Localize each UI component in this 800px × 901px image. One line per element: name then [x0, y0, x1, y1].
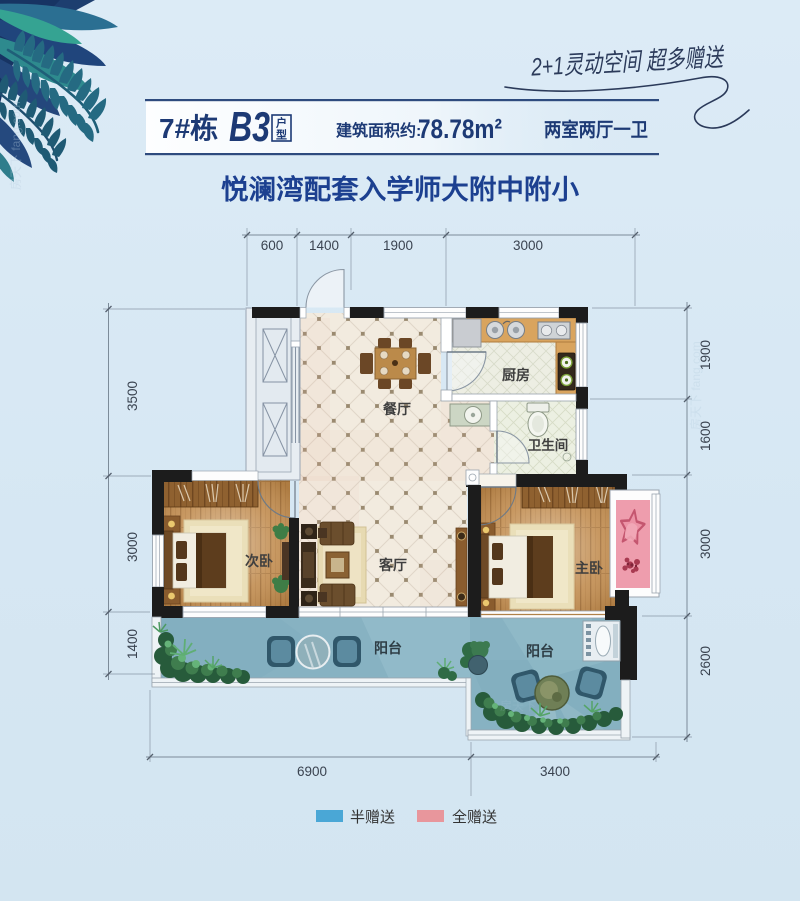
svg-text:厨房: 厨房 [502, 367, 530, 383]
svg-text:次卧: 次卧 [245, 553, 273, 569]
svg-text:悦澜湾配套入学师大附中附小: 悦澜湾配套入学师大附中附小 [221, 174, 579, 205]
svg-text:3000: 3000 [698, 529, 713, 559]
svg-text:1900: 1900 [383, 238, 413, 253]
svg-text:阳台: 阳台 [374, 640, 402, 656]
svg-text:2+1灵动空间 超多赠送: 2+1灵动空间 超多赠送 [530, 44, 726, 82]
svg-text:3500: 3500 [125, 381, 140, 411]
svg-text:600: 600 [261, 238, 284, 253]
svg-text:建筑面积约:: 建筑面积约: [336, 121, 421, 140]
svg-text:主卧: 主卧 [575, 560, 603, 576]
svg-text:房天下 fang.com: 房天下 fang.com [688, 341, 703, 430]
svg-text:两室两厅一卫: 两室两厅一卫 [544, 118, 648, 141]
svg-text:6900: 6900 [297, 764, 327, 779]
svg-text:1400: 1400 [125, 629, 140, 659]
svg-text:78.78m²: 78.78m² [418, 114, 502, 144]
svg-text:1400: 1400 [309, 238, 339, 253]
svg-text:客厅: 客厅 [378, 557, 407, 573]
svg-text:卫生间: 卫生间 [528, 437, 569, 453]
svg-text:户: 户 [276, 116, 287, 130]
svg-text:2600: 2600 [698, 646, 713, 676]
svg-text:3400: 3400 [540, 764, 570, 779]
svg-text:房天下: 房天下 [500, 698, 536, 713]
svg-text:全赠送: 全赠送 [452, 808, 497, 826]
svg-text:型: 型 [276, 128, 287, 142]
svg-text:房天下 fang.com: 房天下 fang.com [8, 101, 23, 190]
svg-text:餐厅: 餐厅 [382, 401, 411, 417]
svg-text:3000: 3000 [125, 532, 140, 562]
svg-text:阳台: 阳台 [526, 643, 554, 659]
svg-text:B3: B3 [229, 103, 270, 150]
svg-text:3000: 3000 [513, 238, 543, 253]
svg-text:7#栋: 7#栋 [159, 112, 218, 144]
svg-text:半赠送: 半赠送 [350, 809, 395, 826]
